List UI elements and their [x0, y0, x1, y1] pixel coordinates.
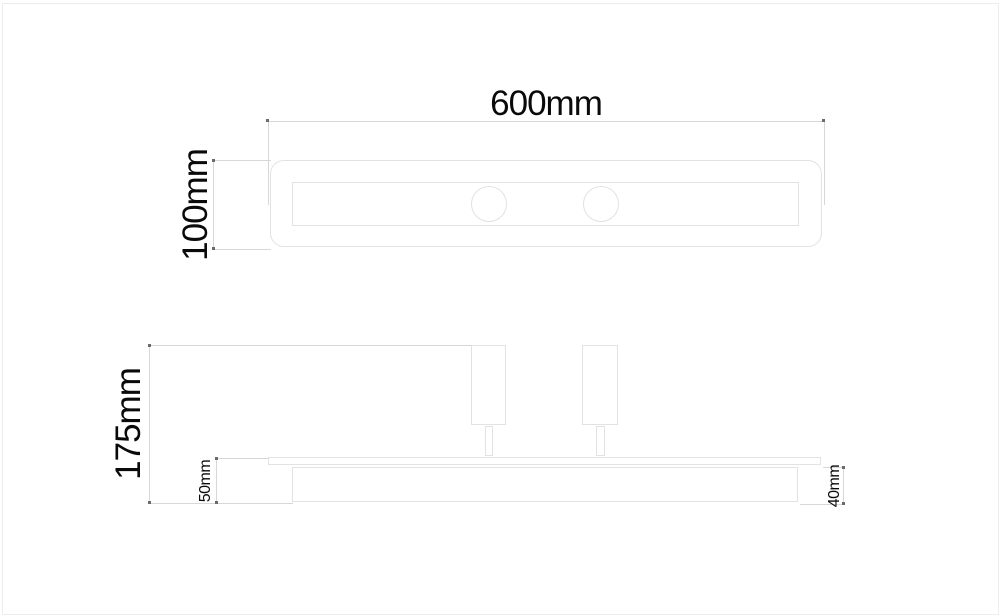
dim-175-extension-bottom — [149, 503, 293, 504]
spotlight-circle-2 — [583, 186, 619, 222]
dim-50-tick-top — [215, 457, 218, 460]
spot-cylinder-1 — [471, 345, 506, 425]
dim-600-label: 600mm — [446, 86, 646, 122]
top-view-inner-panel-outline — [292, 182, 799, 226]
spot-stem-1 — [485, 426, 493, 456]
dim-600-tick-left — [266, 119, 269, 122]
dim-175-label: 175mm — [111, 314, 147, 534]
dim-100-extension-bottom — [213, 249, 271, 250]
dim-100-label: 100mm — [178, 95, 214, 315]
side-view-top-plate — [268, 457, 821, 465]
dim-100-extension-top — [213, 160, 271, 161]
dim-175-tick-top — [148, 344, 151, 347]
dim-50-extension-top — [216, 458, 268, 459]
dim-50-tick-bottom — [215, 501, 218, 504]
spot-cylinder-2 — [582, 345, 618, 425]
dim-175-line — [149, 345, 150, 504]
dim-50-label: 50mm — [197, 421, 215, 541]
dim-600-extension-right — [824, 121, 825, 205]
spot-stem-2 — [596, 426, 605, 456]
dim-40-label: 40mm — [826, 426, 844, 546]
dim-50-line — [216, 458, 217, 504]
drawing-canvas: 600mm 100mm 175mm 50mm — [0, 0, 1000, 616]
dim-600-extension-left — [268, 121, 269, 205]
side-view-main-body — [292, 467, 798, 502]
spotlight-circle-1 — [471, 186, 507, 222]
dim-175-extension-top — [149, 345, 471, 346]
dim-175-tick-bottom — [148, 501, 151, 504]
dim-600-tick-right — [822, 119, 825, 122]
